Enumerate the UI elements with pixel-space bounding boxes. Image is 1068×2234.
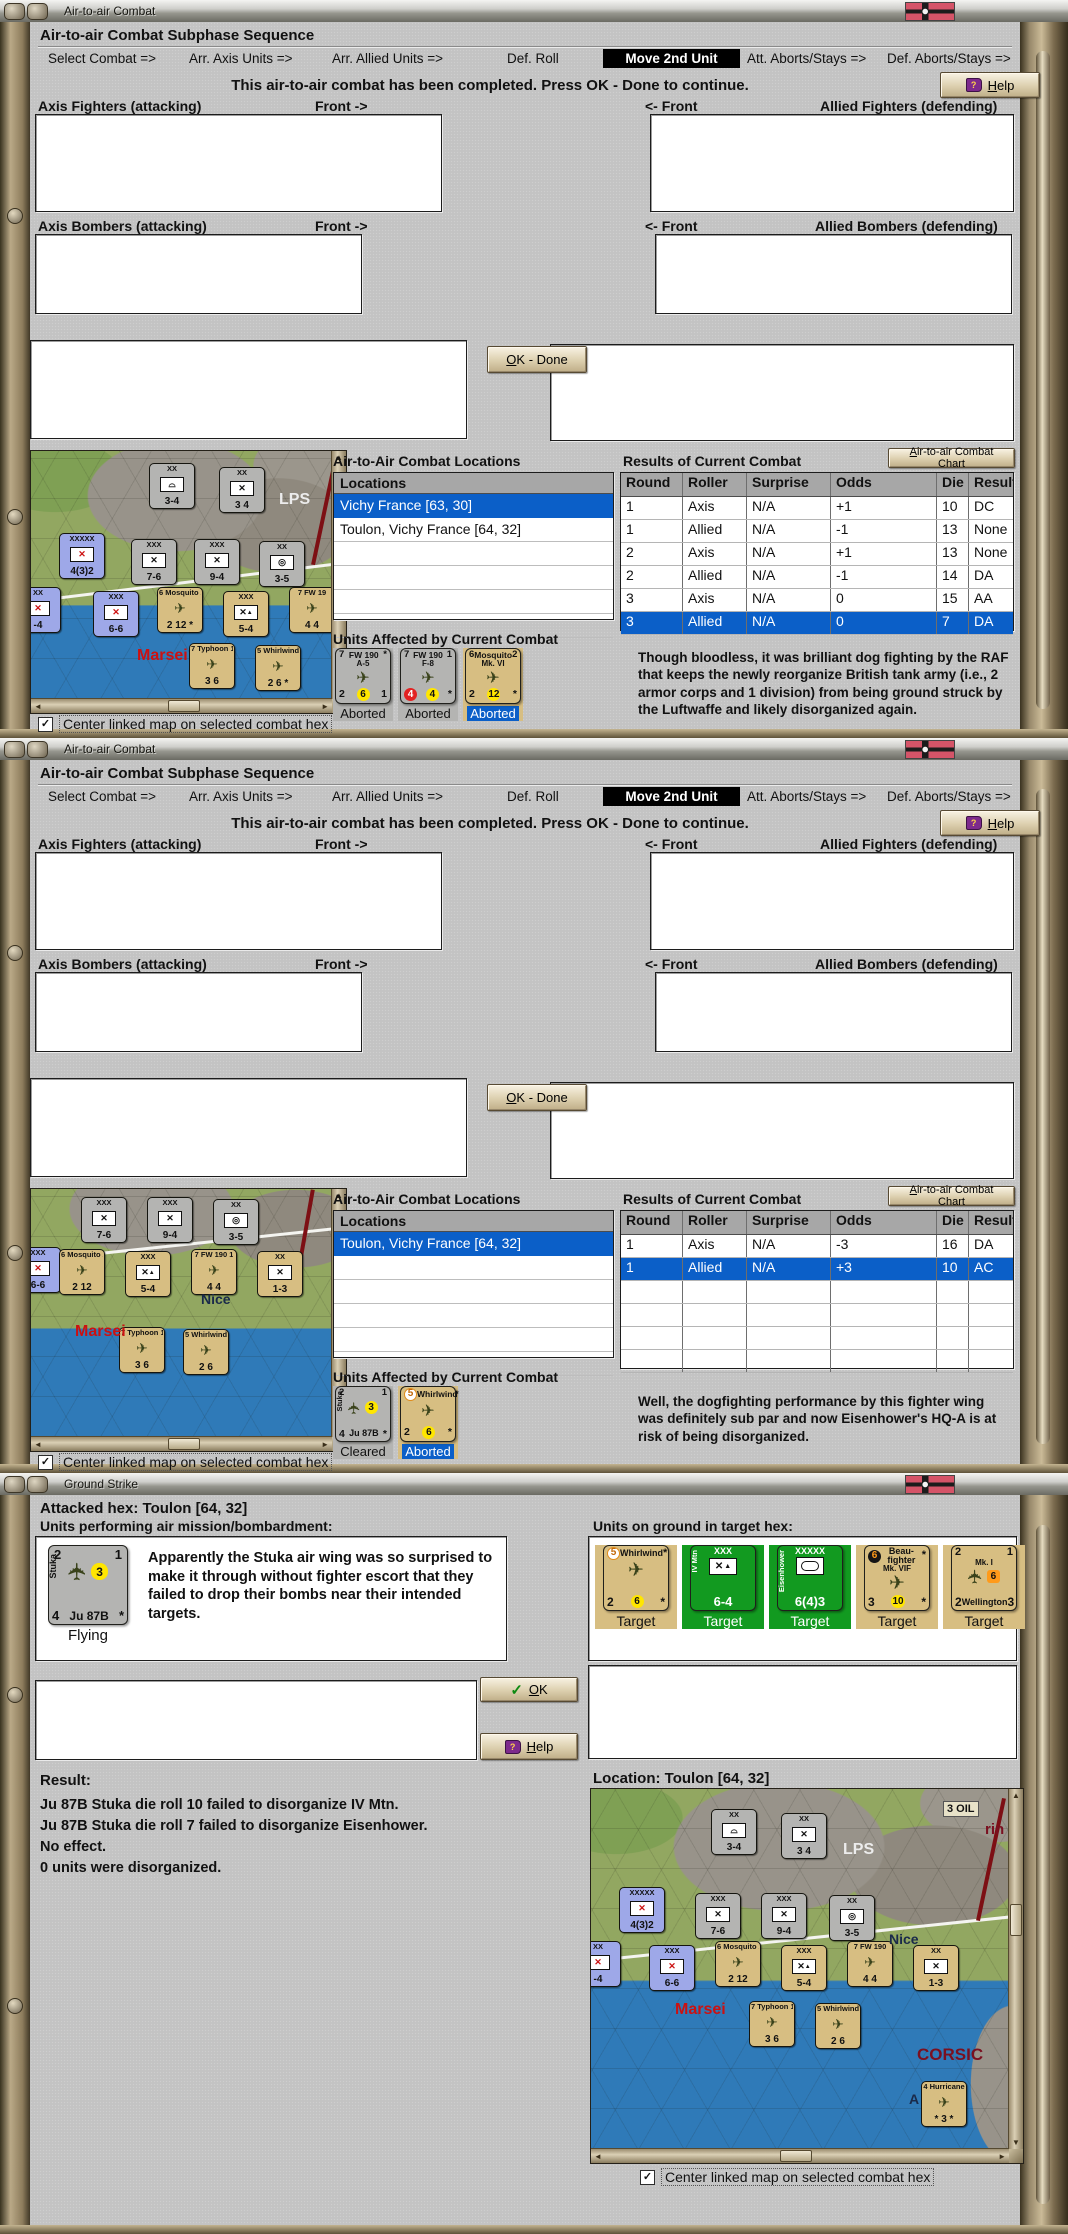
unit-status-label: Aborted xyxy=(402,706,454,721)
checkbox[interactable]: ✓ xyxy=(38,717,53,732)
window-client-area: Attacked hex: Toulon [64, 32] Units perf… xyxy=(30,1495,1020,2225)
map-horizontal-scrollbar[interactable]: ◄ ► xyxy=(31,698,332,713)
axis-bombers-label: Axis Bombers (attacking) xyxy=(38,218,207,234)
scrollbar-thumb[interactable] xyxy=(168,1438,200,1450)
status-message: This air-to-air combat has been complete… xyxy=(90,815,890,832)
combat-map[interactable]: XX ⌓ 3-4 XX ✕ 3 4 XXXXX ✕ 4(3)2 XXX ✕ xyxy=(30,450,347,714)
map-unit-counter[interactable]: XXX ✕ 5-4 xyxy=(223,591,269,637)
window-title: Air-to-air Combat xyxy=(64,742,155,756)
unit-status-label: Aborted xyxy=(467,706,519,721)
scroll-left-icon[interactable]: ◄ xyxy=(31,700,45,713)
window-client-area: Air-to-air Combat Subphase Sequence Sele… xyxy=(30,760,1020,1464)
map-unit-counter[interactable]: XXXXX ✕ 4(3)2 xyxy=(59,533,105,579)
performing-units-box[interactable]: Stuka 21 ✈3 4Ju 87B* Flying Apparently t… xyxy=(35,1536,507,1661)
subphase-tab[interactable]: Arr. Axis Units => xyxy=(189,51,293,66)
map-unit-counter[interactable]: XX ⌓ 3-4 xyxy=(711,1809,757,1855)
help-book-icon: ? xyxy=(966,816,982,830)
front-left-label: <- Front xyxy=(645,98,698,114)
results-row[interactable] xyxy=(621,1327,1013,1350)
window-control-icon[interactable] xyxy=(4,741,25,758)
result-line: Ju 87B Stuka die roll 10 failed to disor… xyxy=(40,1795,428,1816)
locations-listbox[interactable]: Locations Vichy France [63, 30]Toulon, V… xyxy=(333,472,614,620)
map-unit-counter[interactable]: 7 FW 190 ✈ 4 4 xyxy=(847,1941,893,1987)
location-row[interactable] xyxy=(334,1328,613,1352)
unit-symbol-icon: ✈ xyxy=(356,668,369,688)
divider xyxy=(38,46,1012,47)
map-unit-counter[interactable]: XXX ✕ 6-6 xyxy=(649,1945,695,1991)
unit-counter[interactable]: 7FW 190* A-5 ✈ 261 xyxy=(335,648,391,704)
scroll-right-icon[interactable]: ► xyxy=(318,700,332,713)
map-place-label: A xyxy=(909,2091,919,2107)
target-unit[interactable]: Eisenhower XXXXX 6(4)3 Target xyxy=(769,1545,851,1629)
unit-counter[interactable]: 6Mosquito2 Mk. VI ✈ 212* xyxy=(465,648,521,704)
scroll-right-icon[interactable]: ► xyxy=(318,1438,332,1451)
unit-symbol-icon: ✈ xyxy=(628,1559,644,1582)
scroll-left-icon[interactable]: ◄ xyxy=(31,1438,45,1451)
results-row[interactable]: 1AlliedN/A +310AC xyxy=(621,1258,1013,1281)
subphase-header: Air-to-air Combat Subphase Sequence xyxy=(40,27,314,44)
allied-reserve-box[interactable] xyxy=(550,1082,1014,1179)
map-place-label: Marsei xyxy=(137,647,188,665)
result-line: 0 units were disorganized. xyxy=(40,1858,428,1879)
divider xyxy=(38,784,1012,785)
axis-bombers-box[interactable] xyxy=(35,972,362,1052)
map-unit-counter[interactable]: XX ✕ -4 xyxy=(31,587,61,633)
subphase-tab[interactable]: Def. Roll xyxy=(507,51,559,66)
combat-map[interactable]: XXX ✕ 7-6 XXX ✕ 9-4 XX ◎ 3-5 XXX ✕ xyxy=(30,1188,347,1452)
window-frame-right xyxy=(1020,22,1068,738)
allied-bombers-label: Allied Bombers (defending) xyxy=(815,956,998,972)
results-title: Results of Current Combat xyxy=(623,453,801,469)
map-unit-counter[interactable]: XX ✕ -4 xyxy=(591,1941,621,1987)
map-unit-counter[interactable]: XXX ✕ 9-4 xyxy=(194,539,240,585)
location-row[interactable]: Vichy France [63, 30] xyxy=(334,494,613,518)
status-message: This air-to-air combat has been complete… xyxy=(90,77,890,94)
ground-strike-window: Ground Strike Attacked hex: Toulon [64, … xyxy=(0,1473,1068,2234)
check-icon: ✓ xyxy=(643,2172,652,2183)
subphase-tab[interactable]: Def. Roll xyxy=(507,789,559,804)
axis-fighters-box[interactable] xyxy=(35,852,442,950)
axis-reserve-box[interactable] xyxy=(30,340,467,439)
attacked-hex-label: Attacked hex: Toulon [64, 32] xyxy=(40,1500,247,1517)
unit-status-label: Target xyxy=(875,1613,920,1629)
units-affected-title: Units Affected by Current Combat xyxy=(333,1369,558,1385)
scroll-down-icon[interactable]: ▼ xyxy=(1009,2136,1023,2149)
unit-counter[interactable]: 5Whirlwind* ✈ 26* xyxy=(603,1545,669,1611)
results-title: Results of Current Combat xyxy=(623,1191,801,1207)
check-icon: ✓ xyxy=(41,1457,50,1468)
allied-fighters-box[interactable] xyxy=(650,852,1014,950)
scroll-up-icon[interactable]: ▲ xyxy=(1009,1789,1023,1802)
results-row[interactable] xyxy=(621,1281,1013,1304)
axis-fighters-label: Axis Fighters (attacking) xyxy=(38,98,201,114)
locations-header: Locations xyxy=(334,473,613,494)
results-row[interactable]: 2AlliedN/A -114DA xyxy=(621,566,1013,589)
scrollbar-thumb[interactable] xyxy=(780,2150,812,2162)
affected-units-row: Stuka 21 ✈3 4Ju 87B* Cleared 5Whirlwind*… xyxy=(333,1386,458,1459)
subphase-header: Air-to-air Combat Subphase Sequence xyxy=(40,765,314,782)
location-row[interactable] xyxy=(334,542,613,566)
checkbox-label[interactable]: Center linked map on selected combat hex xyxy=(662,2169,933,2185)
location-row[interactable]: Toulon, Vichy France [64, 32] xyxy=(334,518,613,542)
map-place-label: Marsei xyxy=(75,1323,126,1341)
map-unit-counter[interactable]: 5 Whirlwind ✈ 2 6 xyxy=(815,2003,861,2049)
map-unit-counter[interactable]: 5 Whirlwind ✈ 2 6 * xyxy=(255,645,301,691)
window-control-icon[interactable] xyxy=(27,3,48,20)
unit-counter[interactable]: 6Beau-fighter* Mk. VIF ✈ 310* xyxy=(864,1545,930,1611)
unit-status-label: Aborted xyxy=(402,1444,454,1459)
target-unit[interactable]: 5Whirlwind* ✈ 26* Target xyxy=(595,1545,677,1629)
front-right-label: Front -> xyxy=(315,956,368,972)
help-book-icon: ? xyxy=(966,78,982,92)
window-frame-left xyxy=(0,1495,30,2234)
front-left-label: <- Front xyxy=(645,956,698,972)
map-place-label: LPS xyxy=(279,491,310,509)
german-war-flag-icon xyxy=(905,2,955,21)
window-frame-left xyxy=(0,22,30,738)
affected-unit[interactable]: 7FW 1901 F-8 ✈ 44* Aborted xyxy=(398,648,458,721)
performing-units-label: Units performing air mission/bombardment… xyxy=(40,1518,332,1534)
target-unit[interactable]: 6Beau-fighter* Mk. VIF ✈ 310* Target xyxy=(856,1545,938,1629)
unit-status-label: Target xyxy=(788,1613,833,1629)
checkbox-label[interactable]: Center linked map on selected combat hex xyxy=(60,1454,331,1470)
combat-chart-button[interactable]: Air-to-air Combat Chart xyxy=(888,448,1015,468)
results-row[interactable] xyxy=(621,1350,1013,1373)
ok-done-button[interactable]: OK - Done xyxy=(487,346,587,373)
title-bar[interactable]: Ground Strike xyxy=(0,1473,1068,1496)
allied-bombers-box[interactable] xyxy=(655,972,1012,1052)
scrollbar-thumb[interactable] xyxy=(1010,1904,1022,1936)
front-right-label: Front -> xyxy=(315,98,368,114)
unit-status-label: Target xyxy=(701,1613,746,1629)
front-right-label: Front -> xyxy=(315,836,368,852)
locations-listbox[interactable]: Locations Toulon, Vichy France [64, 32] xyxy=(333,1210,614,1358)
allied-bombers-label: Allied Bombers (defending) xyxy=(815,218,998,234)
right-info-box[interactable] xyxy=(588,1665,1017,1759)
help-book-icon: ? xyxy=(505,1740,521,1754)
title-bar[interactable]: Air-to-air Combat xyxy=(0,738,1068,761)
unit-symbol-icon: ✕ xyxy=(709,1558,737,1575)
unit-counter[interactable]: 21 Mk. I ✈6 2Wellington3 xyxy=(951,1545,1017,1611)
subphase-tabs: Select Combat =>Arr. Axis Units =>Arr. A… xyxy=(30,49,1020,69)
help-button[interactable]: ? Help xyxy=(480,1733,578,1760)
result-lines: Ju 87B Stuka die roll 10 failed to disor… xyxy=(40,1795,428,1879)
window-control-icon[interactable] xyxy=(4,3,25,20)
unit-symbol-icon: ✈ xyxy=(421,668,434,688)
window-client-area: Air-to-air Combat Subphase Sequence Sele… xyxy=(30,22,1020,729)
window-frame-right xyxy=(1020,760,1068,1473)
front-right-label: Front -> xyxy=(315,218,368,234)
map-unit-counter[interactable]: 6 Mosquito 2 ✈ 2 12 xyxy=(715,1941,761,1987)
affected-unit[interactable]: Stuka 21 ✈3 4Ju 87B* Cleared xyxy=(333,1386,393,1459)
left-info-box[interactable] xyxy=(35,1680,477,1760)
subphase-tab[interactable]: Def. Aborts/Stays => xyxy=(887,51,1011,66)
allied-fighters-label: Allied Fighters (defending) xyxy=(820,836,997,852)
unit-counter[interactable]: IV Mtn XXX ✕ 6-4 xyxy=(690,1545,756,1611)
map-place-label: CORSIC xyxy=(917,2045,983,2065)
location-label: Location: Toulon [64, 32] xyxy=(593,1770,769,1787)
help-button[interactable]: ? Help xyxy=(940,72,1040,98)
affected-unit[interactable]: 5Whirlwind* ✈ 26* Aborted xyxy=(398,1386,458,1459)
axis-fighters-label: Axis Fighters (attacking) xyxy=(38,836,201,852)
flying-unit[interactable]: Stuka 21 ✈3 4Ju 87B* Flying xyxy=(46,1545,130,1644)
affected-unit[interactable]: 6Mosquito2 Mk. VI ✈ 212* Aborted xyxy=(463,648,523,721)
unit-status-label: Target xyxy=(962,1613,1007,1629)
axis-bombers-label: Axis Bombers (attacking) xyxy=(38,956,207,972)
center-map-checkbox-row: ✓ Center linked map on selected combat h… xyxy=(38,1454,331,1470)
check-icon: ✓ xyxy=(510,1681,523,1699)
results-row[interactable]: 1AxisN/A -316DA xyxy=(621,1235,1013,1258)
subphase-tab[interactable]: Arr. Allied Units => xyxy=(332,789,443,804)
map-horizontal-scrollbar[interactable]: ◄ ► xyxy=(591,2148,1009,2163)
subphase-tab[interactable]: Arr. Allied Units => xyxy=(332,51,443,66)
ok-done-button[interactable]: OK - Done xyxy=(487,1084,587,1111)
result-line: Ju 87B Stuka die roll 7 failed to disorg… xyxy=(40,1816,428,1837)
locations-title: Air-to-Air Combat Locations xyxy=(333,1191,520,1207)
unit-status-label: Target xyxy=(614,1613,659,1629)
strike-narrative: Apparently the Stuka air wing was so sur… xyxy=(148,1549,493,1623)
scroll-left-icon[interactable]: ◄ xyxy=(591,2150,605,2163)
unit-symbol-icon xyxy=(796,1557,824,1575)
air-combat-window-2: Air-to-air Combat Air-to-air Combat Subp… xyxy=(0,738,1068,1473)
air-combat-window-1: Air-to-air Combat Air-to-air Combat Subp… xyxy=(0,0,1068,738)
scrollbar-thumb[interactable] xyxy=(168,700,200,712)
map-unit-counter[interactable]: XXX ✕ 7-6 xyxy=(695,1893,741,1939)
map-unit-counter[interactable]: XX ◎ 3-5 xyxy=(213,1199,259,1245)
checkbox-label[interactable]: Center linked map on selected combat hex xyxy=(60,716,331,732)
target-unit[interactable]: 21 Mk. I ✈6 2Wellington3 Target xyxy=(943,1545,1025,1629)
result-line: No effect. xyxy=(40,1837,428,1858)
subphase-tab[interactable]: Select Combat => xyxy=(48,789,156,804)
axis-bombers-box[interactable] xyxy=(35,234,362,314)
unit-symbol-icon: ✈ xyxy=(345,1401,365,1414)
map-unit-counter[interactable]: XXX ✕ 9-4 xyxy=(147,1197,193,1243)
window-control-icon[interactable] xyxy=(27,741,48,758)
affected-units-row: 7FW 190* A-5 ✈ 261 Aborted 7FW 1901 F-8 … xyxy=(333,648,523,721)
help-button[interactable]: ? Help xyxy=(940,810,1040,836)
location-row[interactable] xyxy=(334,1280,613,1304)
map-unit-counter[interactable]: XX ✕ 1-3 xyxy=(913,1945,959,1991)
map-place-label: 3 OIL xyxy=(943,1801,979,1817)
checkbox[interactable]: ✓ xyxy=(38,1455,53,1470)
location-row[interactable] xyxy=(334,590,613,614)
map-unit-counter[interactable]: XX ⌓ 3-4 xyxy=(149,463,195,509)
unit-status-label: Aborted xyxy=(337,706,389,721)
window-frame-right xyxy=(1020,1495,1068,2234)
subphase-tab[interactable]: Select Combat => xyxy=(48,51,156,66)
results-header-row: RoundRoller SurpriseOdds DieResult xyxy=(621,1211,1013,1235)
window-title: Ground Strike xyxy=(64,1477,138,1491)
map-place-label: Nice xyxy=(201,1291,231,1307)
subphase-tab[interactable]: Move 2nd Unit xyxy=(603,787,740,806)
map-place-label: Marsei xyxy=(675,2001,726,2019)
unit-counter[interactable]: Eisenhower XXXXX 6(4)3 xyxy=(777,1545,843,1611)
unit-counter[interactable]: 5Whirlwind* ✈ 26* xyxy=(400,1386,456,1442)
map-unit-counter[interactable]: 5 Whirlwind ✈ 2 6 xyxy=(183,1329,229,1375)
unit-symbol-icon: ✈ xyxy=(486,668,499,688)
affected-unit[interactable]: 7FW 190* A-5 ✈ 261 Aborted xyxy=(333,648,393,721)
combat-chart-button[interactable]: Air-to-air Combat Chart xyxy=(888,1186,1015,1206)
map-unit-counter[interactable]: 7 Typhoon 1 ✈ 3 6 xyxy=(749,2001,795,2047)
map-unit-counter[interactable]: XXX ✕ 9-4 xyxy=(761,1893,807,1939)
results-header-row: RoundRoller SurpriseOdds DieResult xyxy=(621,473,1013,497)
map-unit-counter[interactable]: XXX ✕ 6-6 xyxy=(31,1247,61,1293)
window-frame-left xyxy=(0,760,30,1473)
unit-counter-ju87b[interactable]: Stuka 21 ✈3 4Ju 87B* xyxy=(48,1545,128,1625)
checkbox[interactable]: ✓ xyxy=(640,2170,655,2185)
map-unit-counter[interactable]: 7 Typhoon 1 ✈ 3 6 xyxy=(189,643,235,689)
title-bar[interactable]: Air-to-air Combat xyxy=(0,0,1068,23)
results-table[interactable]: RoundRoller SurpriseOdds DieResult 1Axis… xyxy=(620,472,1014,631)
aircraft-icon: ✈ xyxy=(63,1562,92,1582)
allied-fighters-box[interactable] xyxy=(650,114,1014,212)
allied-reserve-box[interactable] xyxy=(550,344,1014,441)
results-row[interactable]: 3AlliedN/A 07DA xyxy=(621,612,1013,635)
map-unit-counter[interactable]: XXX ✕ 5-4 xyxy=(781,1945,827,1991)
map-place-label: rin xyxy=(985,1821,1004,1838)
map-unit-counter[interactable]: XX ✕ 3 4 xyxy=(219,467,265,513)
map-unit-counter[interactable]: 7 FW 190 1 ✈ 4 4 xyxy=(191,1249,237,1295)
map-place-label: LPS xyxy=(843,1841,874,1859)
subphase-tab[interactable]: Move 2nd Unit xyxy=(603,49,740,68)
combat-narrative: Well, the dogfighting performance by thi… xyxy=(638,1393,1012,1445)
location-row[interactable] xyxy=(334,1256,613,1280)
subphase-tab[interactable]: Att. Aborts/Stays => xyxy=(747,51,866,66)
unit-symbol-icon: ✈ xyxy=(889,1572,905,1595)
map-viewport[interactable]: XX ⌓ 3-4 XX ✕ 3 4 XXXXX ✕ 4(3)2 XXX ✕ xyxy=(591,1789,1009,2149)
unit-counter[interactable]: 7FW 1901 F-8 ✈ 44* xyxy=(400,648,456,704)
map-viewport[interactable]: XXX ✕ 7-6 XXX ✕ 9-4 XX ◎ 3-5 XXX ✕ xyxy=(31,1189,332,1437)
map-unit-counter[interactable]: XX ◎ 3-5 xyxy=(259,541,305,587)
map-unit-counter[interactable]: XX ◎ 3-5 xyxy=(829,1895,875,1941)
center-map-checkbox-row: ✓ Center linked map on selected combat h… xyxy=(640,2169,933,2185)
subphase-tab[interactable]: Arr. Axis Units => xyxy=(189,789,293,804)
map-unit-counter[interactable]: XXX ✕ 5-4 xyxy=(125,1251,171,1297)
results-row[interactable]: 1AlliedN/A -113None xyxy=(621,520,1013,543)
map-unit-counter[interactable]: 7 FW 19 ✈ 4 4 xyxy=(289,587,332,633)
ground-units-box[interactable]: 5Whirlwind* ✈ 26* Target IV Mtn XXX ✕ 6-… xyxy=(588,1536,1017,1661)
front-left-label: <- Front xyxy=(645,836,698,852)
map-unit-counter[interactable]: XX ✕ 3 4 xyxy=(781,1813,827,1859)
target-unit[interactable]: IV Mtn XXX ✕ 6-4 Target xyxy=(682,1545,764,1629)
location-row[interactable]: Toulon, Vichy France [64, 32] xyxy=(334,1232,613,1256)
map-vertical-scrollbar[interactable]: ▲ ▼ xyxy=(1008,1789,1023,2149)
map-unit-counter[interactable]: XXX ✕ 6-6 xyxy=(93,591,139,637)
german-war-flag-icon xyxy=(905,1475,955,1494)
map-unit-counter[interactable]: 6 Mosquito 2 ✈ 2 12 xyxy=(59,1249,105,1295)
results-row[interactable] xyxy=(621,1304,1013,1327)
result-title: Result: xyxy=(40,1772,91,1789)
allied-fighters-label: Allied Fighters (defending) xyxy=(820,98,997,114)
results-row[interactable]: 2AxisN/A +113None xyxy=(621,543,1013,566)
unit-symbol-icon: ✈ xyxy=(964,1569,987,1585)
front-left-label: <- Front xyxy=(645,218,698,234)
axis-reserve-box[interactable] xyxy=(30,1078,467,1177)
location-row[interactable] xyxy=(334,1304,613,1328)
unit-status-label: Cleared xyxy=(337,1444,389,1459)
map-unit-counter[interactable]: XX ✕ 1-3 xyxy=(257,1251,303,1297)
unit-symbol-icon: ✈ xyxy=(421,1401,434,1421)
scrollbar-corner xyxy=(1009,2149,1023,2163)
subphase-tabs: Select Combat =>Arr. Axis Units =>Arr. A… xyxy=(30,787,1020,807)
map-unit-counter[interactable]: 6 Mosquito 2 ✈ 2 12 * xyxy=(157,587,203,633)
german-war-flag-icon xyxy=(905,740,955,759)
scroll-right-icon[interactable]: ► xyxy=(995,2150,1009,2163)
results-row[interactable]: 1AxisN/A +110DC xyxy=(621,497,1013,520)
map-viewport[interactable]: XX ⌓ 3-4 XX ✕ 3 4 XXXXX ✕ 4(3)2 XXX ✕ xyxy=(31,451,332,699)
subphase-tab[interactable]: Def. Aborts/Stays => xyxy=(887,789,1011,804)
window-control-icon[interactable] xyxy=(27,1476,48,1493)
map-place-label: Nice xyxy=(889,1931,919,1947)
combat-narrative: Though bloodless, it was brilliant dog f… xyxy=(638,649,1012,718)
ground-units-label: Units on ground in target hex: xyxy=(593,1518,793,1534)
results-table[interactable]: RoundRoller SurpriseOdds DieResult 1Axis… xyxy=(620,1210,1014,1369)
unit-status-label: Flying xyxy=(65,1627,111,1644)
location-map[interactable]: XX ⌓ 3-4 XX ✕ 3 4 XXXXX ✕ 4(3)2 XXX ✕ xyxy=(590,1788,1024,2164)
center-map-checkbox-row: ✓ Center linked map on selected combat h… xyxy=(38,716,331,732)
locations-header: Locations xyxy=(334,1211,613,1232)
unit-counter[interactable]: Stuka 21 ✈3 4Ju 87B* xyxy=(335,1386,391,1442)
window-control-icon[interactable] xyxy=(4,1476,25,1493)
axis-fighters-box[interactable] xyxy=(35,114,442,212)
map-unit-counter[interactable]: XXX ✕ 7-6 xyxy=(131,539,177,585)
window-frame-bottom xyxy=(0,2225,1068,2234)
target-units-row: 5Whirlwind* ✈ 26* Target IV Mtn XXX ✕ 6-… xyxy=(595,1545,1025,1629)
window-title: Air-to-air Combat xyxy=(64,4,155,18)
subphase-tab[interactable]: Att. Aborts/Stays => xyxy=(747,789,866,804)
ok-button[interactable]: ✓ OK xyxy=(480,1677,578,1702)
location-row[interactable] xyxy=(334,566,613,590)
map-unit-counter[interactable]: XXXXX ✕ 4(3)2 xyxy=(619,1887,665,1933)
map-unit-counter[interactable]: 4 Hurricane ✈ * 3 * xyxy=(921,2081,967,2127)
map-unit-counter[interactable]: XXX ✕ 7-6 xyxy=(81,1197,127,1243)
check-icon: ✓ xyxy=(41,719,50,730)
allied-bombers-box[interactable] xyxy=(655,234,1012,314)
map-unit-counter[interactable]: 7 Typhoon 1 ✈ 3 6 xyxy=(119,1327,165,1373)
locations-title: Air-to-Air Combat Locations xyxy=(333,453,520,469)
units-affected-title: Units Affected by Current Combat xyxy=(333,631,558,647)
results-row[interactable]: 3AxisN/A 015AA xyxy=(621,589,1013,612)
map-horizontal-scrollbar[interactable]: ◄ ► xyxy=(31,1436,332,1451)
